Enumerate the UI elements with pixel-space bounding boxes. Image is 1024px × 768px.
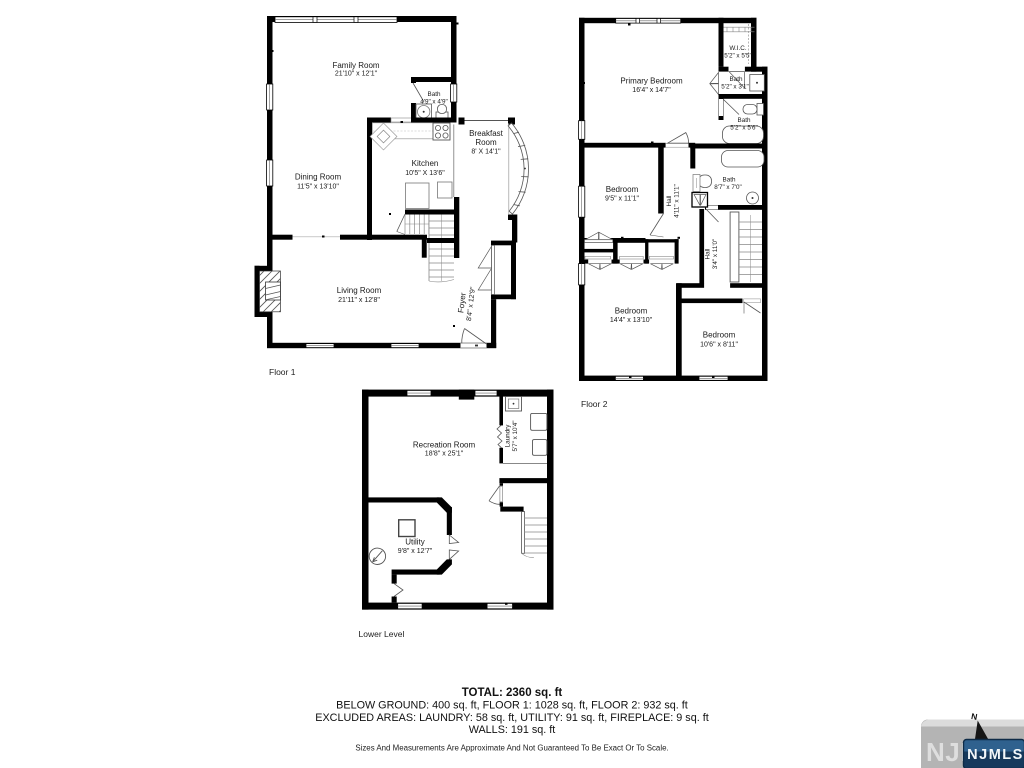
- svg-text:5'2" x 5'5": 5'2" x 5'5": [724, 53, 752, 60]
- svg-text:Bath: Bath: [723, 177, 736, 184]
- svg-text:Room: Room: [475, 138, 497, 147]
- svg-text:NJMLS: NJMLS: [967, 747, 1024, 763]
- svg-text:9'5" x 11'1": 9'5" x 11'1": [605, 196, 639, 203]
- svg-text:Bedroom: Bedroom: [703, 331, 736, 340]
- svg-text:4'11" x 11'1": 4'11" x 11'1": [674, 184, 681, 218]
- svg-text:4'9" x 4'9": 4'9" x 4'9": [420, 99, 448, 106]
- svg-text:Bath: Bath: [738, 117, 751, 124]
- svg-text:5'2" x 5'6": 5'2" x 5'6": [730, 125, 758, 132]
- svg-text:Family Room: Family Room: [332, 61, 379, 70]
- svg-text:3'4" x 11'0": 3'4" x 11'0": [712, 239, 719, 270]
- svg-text:8' X 14'1": 8' X 14'1": [471, 149, 501, 156]
- svg-text:Primary Bedroom: Primary Bedroom: [620, 77, 683, 86]
- svg-text:Bedroom: Bedroom: [606, 185, 639, 194]
- svg-text:5'7" x 10'4": 5'7" x 10'4": [512, 420, 519, 451]
- svg-text:Sizes And Measurements Are App: Sizes And Measurements Are Approximate A…: [355, 744, 668, 753]
- svg-text:Floor 1: Floor 1: [269, 367, 296, 377]
- svg-text:10'6" x 8'11": 10'6" x 8'11": [700, 342, 738, 349]
- svg-text:Hall: Hall: [705, 249, 712, 260]
- svg-text:Laundry: Laundry: [505, 424, 512, 448]
- svg-text:TOTAL: 2360 sq. ft: TOTAL: 2360 sq. ft: [462, 687, 563, 699]
- svg-text:8'7" x 7'0": 8'7" x 7'0": [714, 184, 742, 191]
- svg-text:EXCLUDED AREAS: LAUNDRY: 58 sq: EXCLUDED AREAS: LAUNDRY: 58 sq. ft, UTIL…: [315, 712, 708, 724]
- svg-text:WALLS: 191 sq. ft: WALLS: 191 sq. ft: [469, 724, 556, 736]
- svg-text:Recreation Room: Recreation Room: [413, 441, 476, 450]
- svg-text:BELOW GROUND: 400 sq. ft, FLOO: BELOW GROUND: 400 sq. ft, FLOOR 1: 1028 …: [336, 700, 688, 712]
- svg-text:21'11" x 12'8": 21'11" x 12'8": [338, 297, 380, 304]
- svg-text:Living Room: Living Room: [337, 286, 382, 295]
- svg-text:16'4" x 14'7": 16'4" x 14'7": [632, 87, 671, 94]
- svg-text:11'5" x 13'10": 11'5" x 13'10": [297, 184, 339, 191]
- svg-text:Bedroom: Bedroom: [615, 307, 648, 316]
- svg-text:18'8" x 25'1": 18'8" x 25'1": [425, 451, 464, 458]
- svg-text:10'5" X 13'6": 10'5" X 13'6": [405, 170, 445, 177]
- svg-text:Breakfast: Breakfast: [469, 129, 504, 138]
- svg-text:Kitchen: Kitchen: [412, 159, 439, 168]
- svg-text:Utility: Utility: [405, 538, 425, 547]
- svg-text:W.I.C.: W.I.C.: [729, 45, 746, 52]
- svg-text:5'2" x 3'1": 5'2" x 3'1": [721, 84, 749, 91]
- svg-text:Bath: Bath: [428, 91, 441, 98]
- svg-text:9'8" x 12'7": 9'8" x 12'7": [398, 548, 433, 555]
- svg-text:Lower Level: Lower Level: [359, 629, 405, 639]
- svg-text:Bath: Bath: [730, 76, 743, 83]
- svg-text:Floor 2: Floor 2: [581, 399, 608, 409]
- svg-text:Dining Room: Dining Room: [295, 173, 342, 182]
- svg-text:14'4" x 13'10": 14'4" x 13'10": [610, 317, 653, 324]
- svg-text:Hall: Hall: [666, 196, 673, 207]
- svg-text:21'10" x 12'1": 21'10" x 12'1": [335, 71, 378, 78]
